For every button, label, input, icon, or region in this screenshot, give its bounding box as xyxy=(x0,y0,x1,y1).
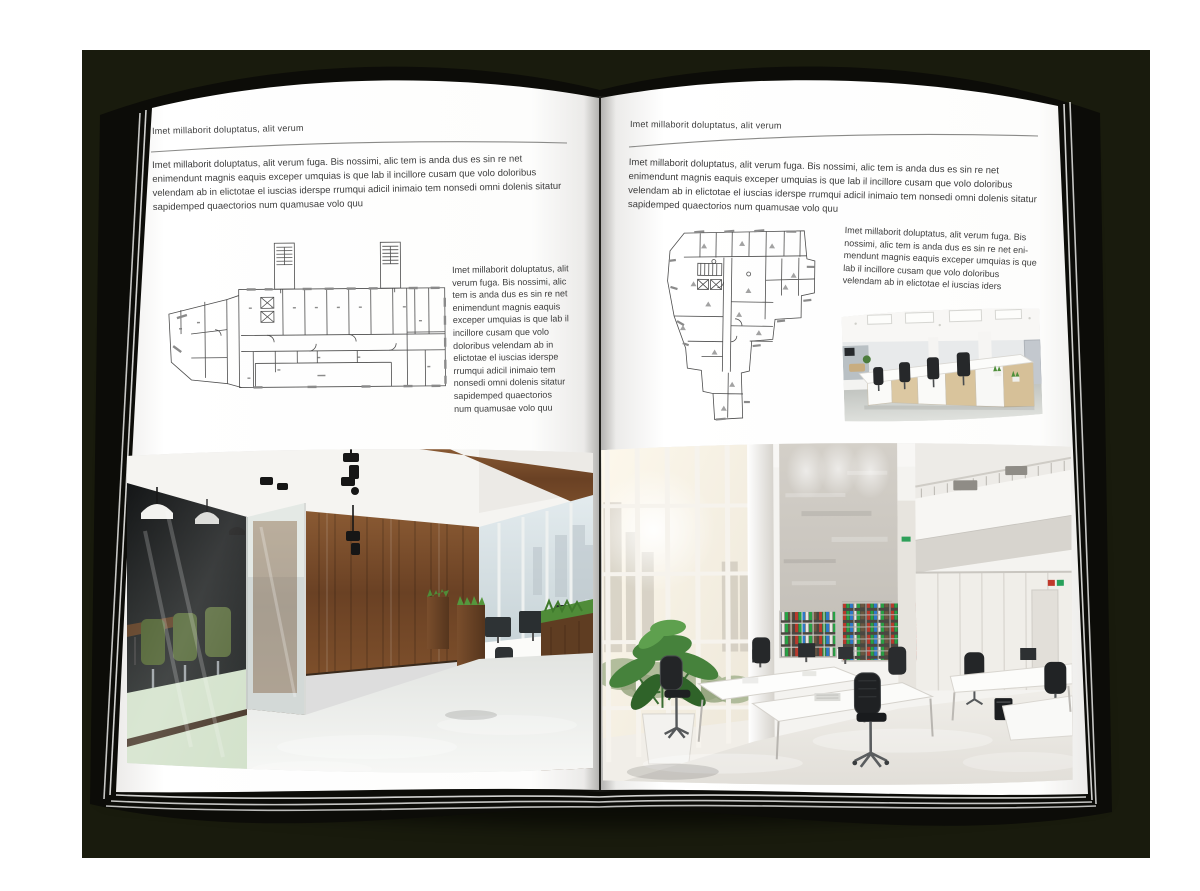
glass-partition xyxy=(247,503,305,721)
office-photo-right xyxy=(601,440,1073,789)
floor-plan-left xyxy=(156,236,450,417)
right-side-text: Imet millaborit doluptatus, alit verum f… xyxy=(842,224,1040,295)
floor-plan-right xyxy=(652,221,843,426)
magazine-spread-mockup: Imet millaborit doluptatus, alit verum I… xyxy=(0,0,1200,891)
exit-sign xyxy=(902,537,911,542)
left-side-text: Imet millaborit doluptatus, alit verum f… xyxy=(452,262,572,415)
left-intro-paragraph: Imet millaborit doluptatus, alit verum f… xyxy=(152,152,567,215)
wood-plank-wall xyxy=(305,511,479,675)
office-photo-left xyxy=(127,447,593,777)
office-photo-small xyxy=(841,306,1042,424)
mezzanine-balcony xyxy=(915,440,1072,573)
plan2-window-marks xyxy=(667,229,816,421)
right-intro-paragraph: Imet millaborit doluptatus, alit verum f… xyxy=(628,156,1043,221)
glass-meeting-room xyxy=(127,483,247,777)
right-header-rule xyxy=(628,128,1040,152)
